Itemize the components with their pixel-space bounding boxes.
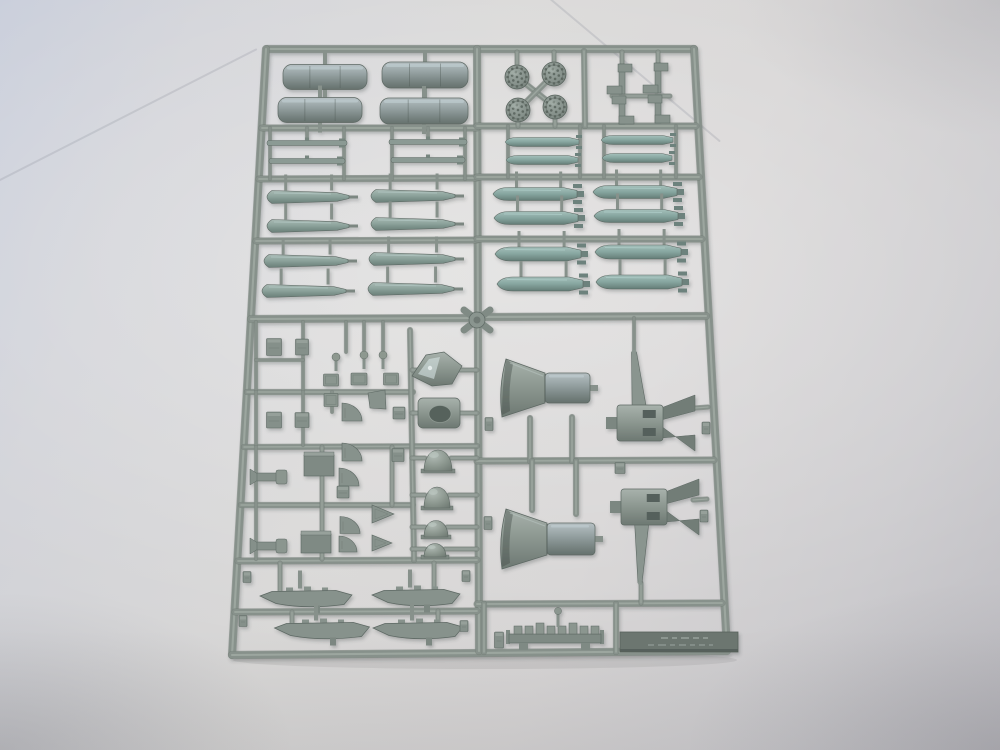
part-nozzle	[501, 359, 598, 417]
sprue-rail-h7-left	[238, 560, 477, 561]
part-rod	[267, 138, 347, 148]
sprue-rail-h3-left	[256, 240, 477, 241]
part-tab	[239, 616, 247, 627]
part-panel	[324, 394, 338, 407]
part-panel	[384, 373, 399, 385]
part-dome	[421, 521, 451, 540]
part-zbracket	[643, 63, 668, 93]
part-tab	[296, 339, 309, 355]
sprue-rail-outer-right	[694, 49, 727, 650]
part-tab	[392, 449, 404, 462]
part-bomb	[497, 261, 590, 295]
part-nameplate	[620, 632, 738, 652]
part-wheel	[506, 98, 530, 122]
sprue-rail-wheelbox-vertical	[584, 51, 585, 126]
part-vmissile	[610, 479, 699, 585]
part-nozzle	[501, 509, 603, 569]
sprue-rail-mid-right	[477, 316, 706, 317]
part-tab	[702, 422, 710, 434]
part-rod	[389, 137, 467, 147]
part-bomb	[595, 229, 688, 263]
part-tab	[495, 632, 504, 648]
sprue-rail-h2-left	[259, 178, 477, 179]
part-tri	[372, 535, 392, 551]
part-dome	[421, 544, 449, 560]
sprue-rail-stub	[693, 499, 707, 500]
part-panel	[351, 373, 367, 385]
part-minibomb	[602, 151, 675, 165]
part-minibomb	[601, 133, 676, 147]
part-rod	[391, 155, 465, 165]
part-zbracket	[648, 95, 670, 123]
part-fan	[342, 403, 362, 421]
part-tanklet	[267, 204, 358, 233]
part-knob	[332, 353, 340, 371]
part-tank	[283, 53, 367, 100]
part-tanklet	[371, 202, 464, 231]
photo-background	[0, 0, 1000, 750]
part-wedge	[368, 390, 386, 409]
part-tab	[460, 621, 468, 632]
sprue-rail-h4-right	[477, 460, 714, 461]
part-zbracket	[607, 64, 632, 94]
part-tab	[243, 572, 251, 583]
part-minibomb	[506, 153, 581, 167]
sprue	[232, 49, 738, 655]
part-rack	[506, 623, 604, 650]
part-tab	[462, 571, 470, 582]
sprue-rail-h5-left	[244, 446, 477, 447]
sprue-rail-h5-right	[477, 603, 722, 604]
part-tab	[615, 463, 625, 474]
part-tanklet	[262, 269, 355, 298]
part-bomb	[596, 259, 689, 293]
part-tab	[393, 407, 405, 419]
part-tab	[295, 413, 309, 428]
part-tab	[267, 412, 282, 428]
part-tab	[485, 418, 493, 431]
part-tab	[337, 486, 349, 498]
sprue-photo	[0, 0, 1000, 750]
part-rod	[269, 156, 345, 166]
part-vmissile	[606, 350, 695, 451]
part-fan	[339, 468, 359, 486]
sprue-rail-mid-left	[251, 318, 477, 319]
part-dome	[421, 487, 453, 510]
sprue-rail-stub	[695, 407, 708, 408]
part-pylon	[260, 571, 352, 614]
part-fan	[339, 536, 357, 552]
part-knob	[379, 351, 387, 369]
part-wheel	[505, 65, 529, 89]
part-knob	[360, 351, 368, 369]
part-dome	[421, 450, 455, 473]
part-pin	[555, 608, 562, 628]
part-pylon	[372, 570, 460, 613]
part-ringpart	[418, 398, 460, 428]
part-panel	[324, 374, 339, 386]
part-tanklet	[368, 267, 463, 296]
part-box	[304, 452, 334, 476]
part-canopy	[412, 352, 462, 386]
part-wheel	[542, 62, 566, 86]
part-tab	[267, 339, 282, 356]
part-tab	[484, 517, 492, 530]
part-fan	[340, 517, 360, 534]
part-wheel	[543, 95, 567, 119]
part-zbracket	[612, 96, 634, 124]
part-tab	[700, 510, 708, 522]
part-box	[301, 531, 331, 553]
sprue-rail-h8-left	[235, 611, 477, 612]
part-minibomb	[505, 135, 582, 149]
